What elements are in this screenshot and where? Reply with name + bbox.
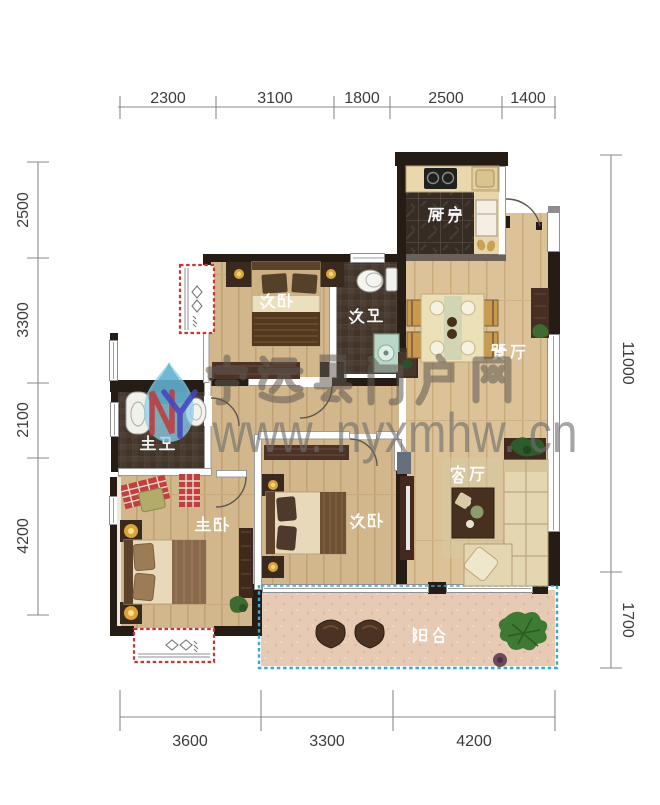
svg-text:3300: 3300 xyxy=(15,302,32,338)
svg-text:4200: 4200 xyxy=(15,518,32,554)
svg-text:3600: 3600 xyxy=(172,733,208,750)
svg-text:1700: 1700 xyxy=(619,602,636,638)
svg-text:3100: 3100 xyxy=(257,90,293,107)
svg-text:11000: 11000 xyxy=(619,341,636,384)
svg-text:2500: 2500 xyxy=(428,90,464,107)
svg-text:2300: 2300 xyxy=(150,90,186,107)
svg-text:2100: 2100 xyxy=(15,402,32,438)
svg-text:1400: 1400 xyxy=(510,90,546,107)
svg-text:1800: 1800 xyxy=(344,90,380,107)
svg-text:2500: 2500 xyxy=(15,192,32,228)
svg-text:4200: 4200 xyxy=(456,733,492,750)
svg-text:3300: 3300 xyxy=(309,733,345,750)
svg-text:www. nyxmhw. cn: www. nyxmhw. cn xyxy=(212,401,578,464)
